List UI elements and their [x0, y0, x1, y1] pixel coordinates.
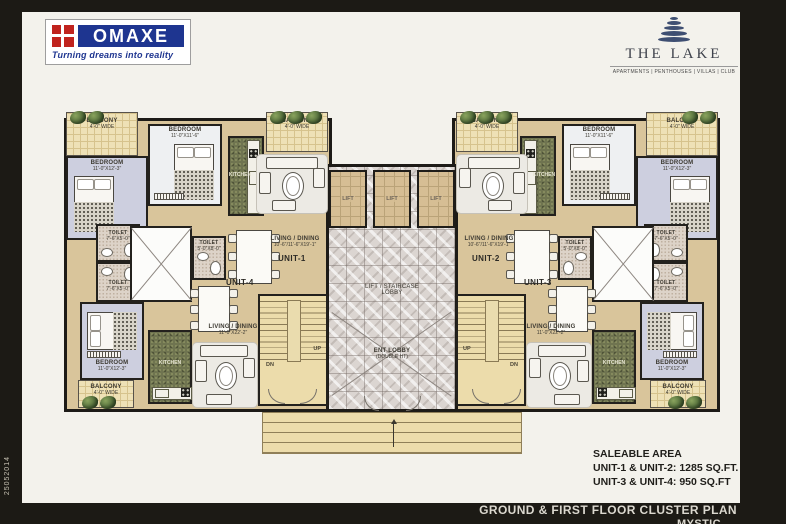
omaxe-logo: OMAXE Turning dreams into reality: [45, 19, 191, 65]
kitchen-label: KITCHEN: [600, 360, 628, 366]
sofa-set-unit3: [526, 342, 592, 408]
kitchen-label: KITCHEN: [156, 360, 184, 366]
kitchen-unit3: [592, 330, 636, 404]
wardrobe: [87, 351, 121, 358]
project-name: THE LAKE: [610, 46, 738, 63]
kitchen-counter: [596, 387, 636, 400]
saleable-area-unit12: UNIT-1 & UNIT-2: 1285 SQ.FT.: [593, 462, 738, 476]
sofa-set-unit2: [456, 154, 528, 214]
saleable-area-unit34: UNIT-3 & UNIT-4: 950 SQ.FT: [593, 476, 738, 490]
stair-dn-label: DN: [510, 362, 518, 368]
entrance-steps: [262, 412, 522, 454]
saleable-area-block: SALEABLE AREA UNIT-1 & UNIT-2: 1285 SQ.F…: [593, 448, 738, 490]
unit1-label: UNIT-1: [278, 254, 306, 263]
shaft-right: [592, 226, 654, 302]
kitchen-unit4: [148, 330, 192, 404]
stair-up-label: UP: [313, 346, 321, 352]
stair-dn-label: DN: [266, 362, 274, 368]
lift-3: LIFT: [417, 170, 455, 228]
sofa-set-unit4: [192, 342, 258, 408]
living-dining-label-unit4: LIVING / DINING 11'-0"X22'-2": [202, 324, 264, 336]
balcony-label: BALCONY 4'-0" WIDE: [79, 384, 133, 396]
toilet-label: TOILET 5'-0"X8'-0": [192, 240, 226, 252]
toilet-label: TOILET 5'-0"X8'-0": [558, 240, 592, 252]
staircase-right: DN UP: [456, 294, 526, 406]
wardrobe: [663, 351, 697, 358]
lift-lobby-label: LIFT / STAIRCASE LOBBY: [342, 284, 442, 296]
kitchen-label: KITCHEN: [228, 172, 252, 178]
kitchen-label: KITCHEN: [532, 172, 556, 178]
tower-icon: [610, 17, 738, 42]
bedroom-label: BEDROOM 11'-0"X12'-3": [82, 360, 142, 372]
staircase-left: DN UP: [258, 294, 328, 406]
lift-1: LIFT: [329, 170, 367, 228]
living-dining-label-unit1: LIVING / DINING 10'-6"/11'-6"X19'-1": [262, 236, 328, 248]
unit4-label: UNIT-4: [226, 278, 254, 287]
sheet-title-block: GROUND & FIRST FLOOR CLUSTER PLAN MYSTIC: [479, 504, 737, 524]
sheet-title: GROUND & FIRST FLOOR CLUSTER PLAN: [479, 504, 737, 518]
omaxe-tagline: Turning dreams into reality: [52, 50, 184, 60]
ent-lobby-label: ENT LOBBY (DOUBLE HT): [352, 348, 432, 360]
unit2-label: UNIT-2: [472, 254, 500, 263]
wardrobe: [600, 193, 630, 200]
living-dining-label-unit3: LIVING / DINING 11'-0"X22'-2": [520, 324, 582, 336]
shaft-left: [130, 226, 192, 302]
saleable-area-title: SALEABLE AREA: [593, 448, 738, 462]
bed: [87, 312, 137, 350]
plan-sheet: OMAXE Turning dreams into reality THE LA…: [0, 0, 786, 524]
the-lake-logo: THE LAKE APARTMENTS | PENTHOUSES | VILLA…: [610, 17, 738, 75]
bedroom-label: BEDROOM 11'-0"X12'-3": [638, 160, 716, 172]
sheet-page: OMAXE Turning dreams into reality THE LA…: [22, 12, 740, 503]
door-arc: [504, 389, 521, 404]
omaxe-logo-icon: [52, 25, 74, 47]
omaxe-wordmark: OMAXE: [78, 25, 184, 47]
side-code: 25052014: [4, 456, 11, 495]
entry-arrow: [393, 421, 394, 447]
balcony-label: BALCONY 4'-0" WIDE: [651, 384, 705, 396]
living-dining-label-unit2: LIVING / DINING 10'-6"/11'-6"X19'-1": [456, 236, 522, 248]
bed: [647, 312, 697, 350]
door-arc: [472, 389, 489, 404]
unit3-label: UNIT-3: [524, 278, 552, 287]
door-arc: [300, 389, 317, 404]
bed: [570, 144, 610, 200]
bedroom-label: BEDROOM 11'-0"X12'-3": [642, 360, 702, 372]
sheet-subtitle: MYSTIC: [479, 518, 721, 524]
wardrobe: [154, 193, 184, 200]
sofa-set-unit1: [256, 154, 328, 214]
bedroom-label: BEDROOM 11'-0"X11'-6": [564, 127, 634, 139]
bedroom-label: BEDROOM 11'-0"X11'-6": [150, 127, 220, 139]
bedroom-label: BEDROOM 11'-0"X12'-3": [68, 160, 146, 172]
bed: [174, 144, 214, 200]
kitchen-counter: [152, 387, 192, 400]
project-subtitle: APARTMENTS | PENTHOUSES | VILLAS | CLUB: [610, 66, 738, 75]
stair-up-label: UP: [463, 346, 471, 352]
lift-2: LIFT: [373, 170, 411, 228]
door-arc: [268, 389, 285, 404]
